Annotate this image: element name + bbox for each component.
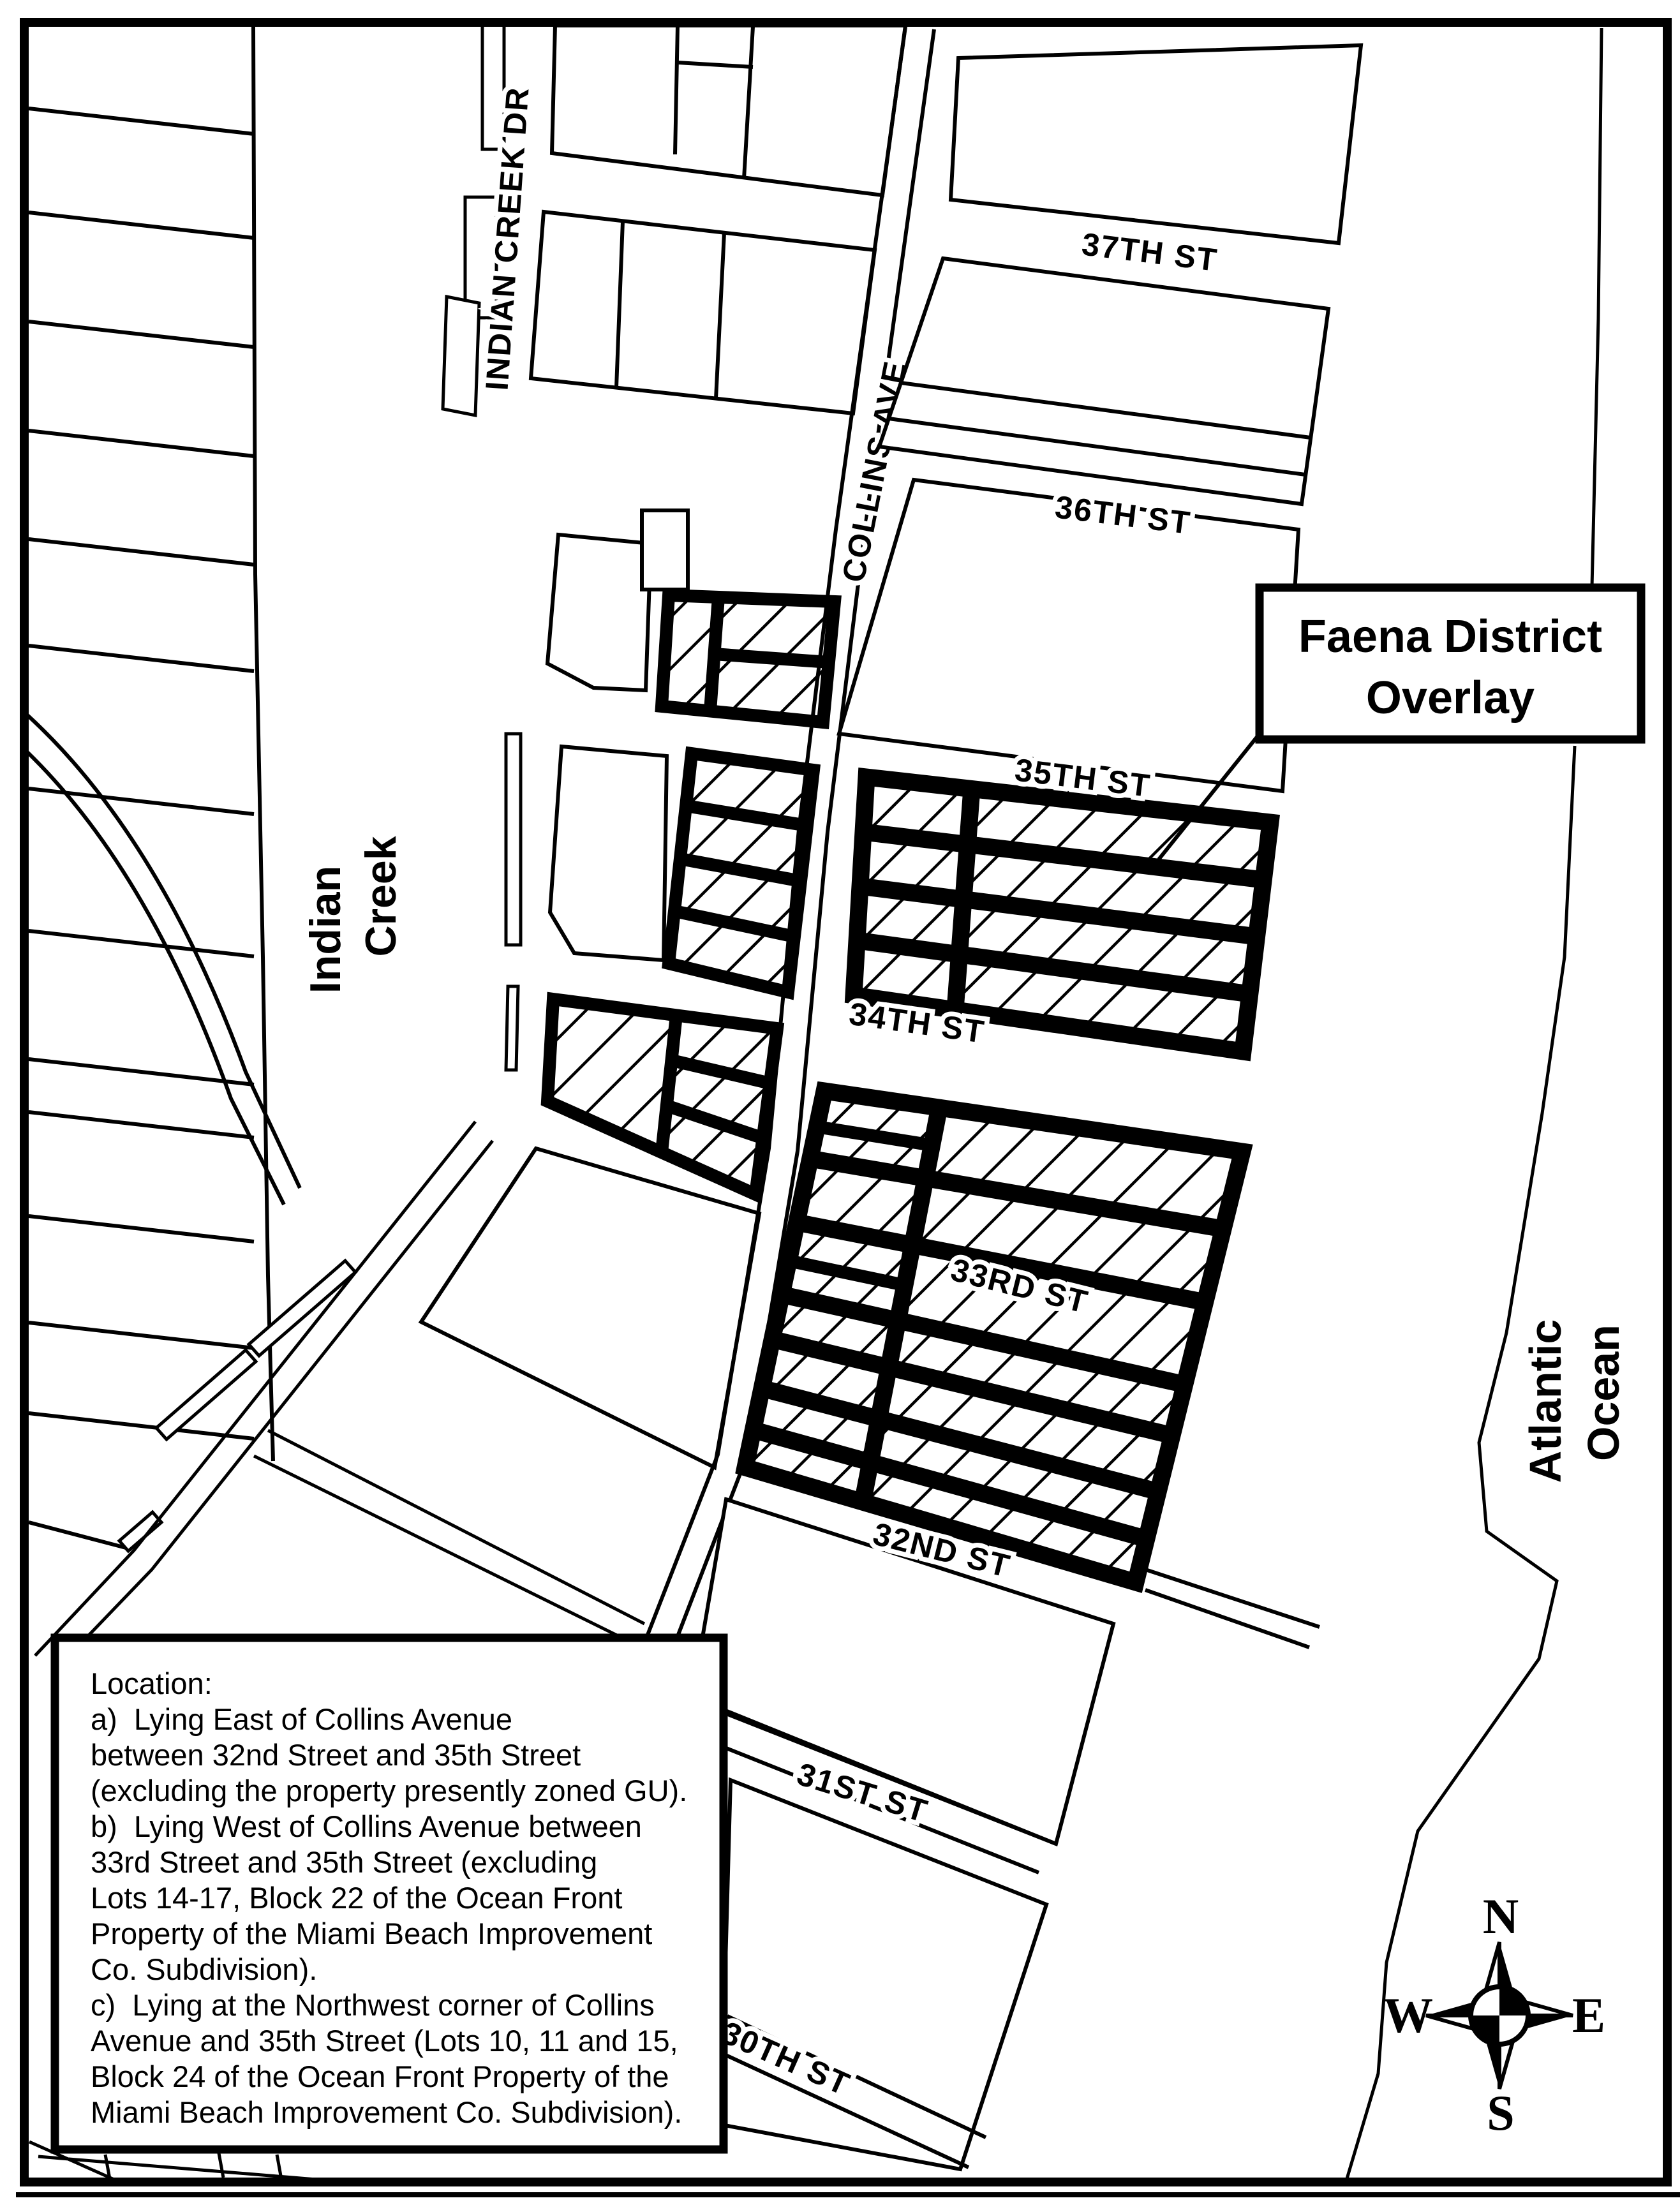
svg-text:(excluding the property presen: (excluding the property presently zoned …: [91, 1774, 687, 1807]
svg-text:a) Lying East of Collins Aven: a) Lying East of Collins Avenue: [91, 1702, 512, 1736]
svg-text:b) Lying West of Collins Aven: b) Lying West of Collins Avenue between: [91, 1809, 642, 1843]
svg-text:Avenue and 35th Street (Lots 1: Avenue and 35th Street (Lots 10, 11 and …: [91, 2024, 678, 2058]
svg-text:Property of the Miami Beach Im: Property of the Miami Beach Improvement: [91, 1917, 652, 1950]
svg-text:Miami Beach Improvement Co. Su: Miami Beach Improvement Co. Subdivision)…: [91, 2095, 682, 2129]
svg-text:Lots 14-17, Block 22 of the Oc: Lots 14-17, Block 22 of the Ocean Front: [91, 1881, 622, 1915]
svg-text:Block 24 of the Ocean Front Pr: Block 24 of the Ocean Front Property of …: [91, 2060, 669, 2093]
svg-text:Indian: Indian: [301, 866, 350, 993]
svg-text:c) Lying at the Northwest cor: c) Lying at the Northwest corner of Coll…: [91, 1988, 655, 2022]
svg-text:S: S: [1487, 2085, 1514, 2141]
svg-text:Atlantic: Atlantic: [1520, 1319, 1570, 1483]
svg-text:Overlay: Overlay: [1366, 672, 1535, 724]
svg-text:33rd Street and 35th Street (e: 33rd Street and 35th Street (excluding: [91, 1845, 597, 1879]
svg-text:Co. Subdivision).: Co. Subdivision).: [91, 1952, 317, 1986]
svg-text:between 32nd Street and 35th S: between 32nd Street and 35th Street: [91, 1738, 581, 1772]
svg-text:Ocean: Ocean: [1579, 1325, 1628, 1461]
svg-text:W: W: [1383, 1987, 1433, 2043]
svg-text:N: N: [1483, 1889, 1519, 1944]
svg-text:Location:: Location:: [91, 1666, 212, 1700]
svg-text:Creek: Creek: [357, 836, 405, 956]
svg-text:E: E: [1572, 1987, 1605, 2043]
svg-text:Faena District: Faena District: [1298, 611, 1602, 662]
